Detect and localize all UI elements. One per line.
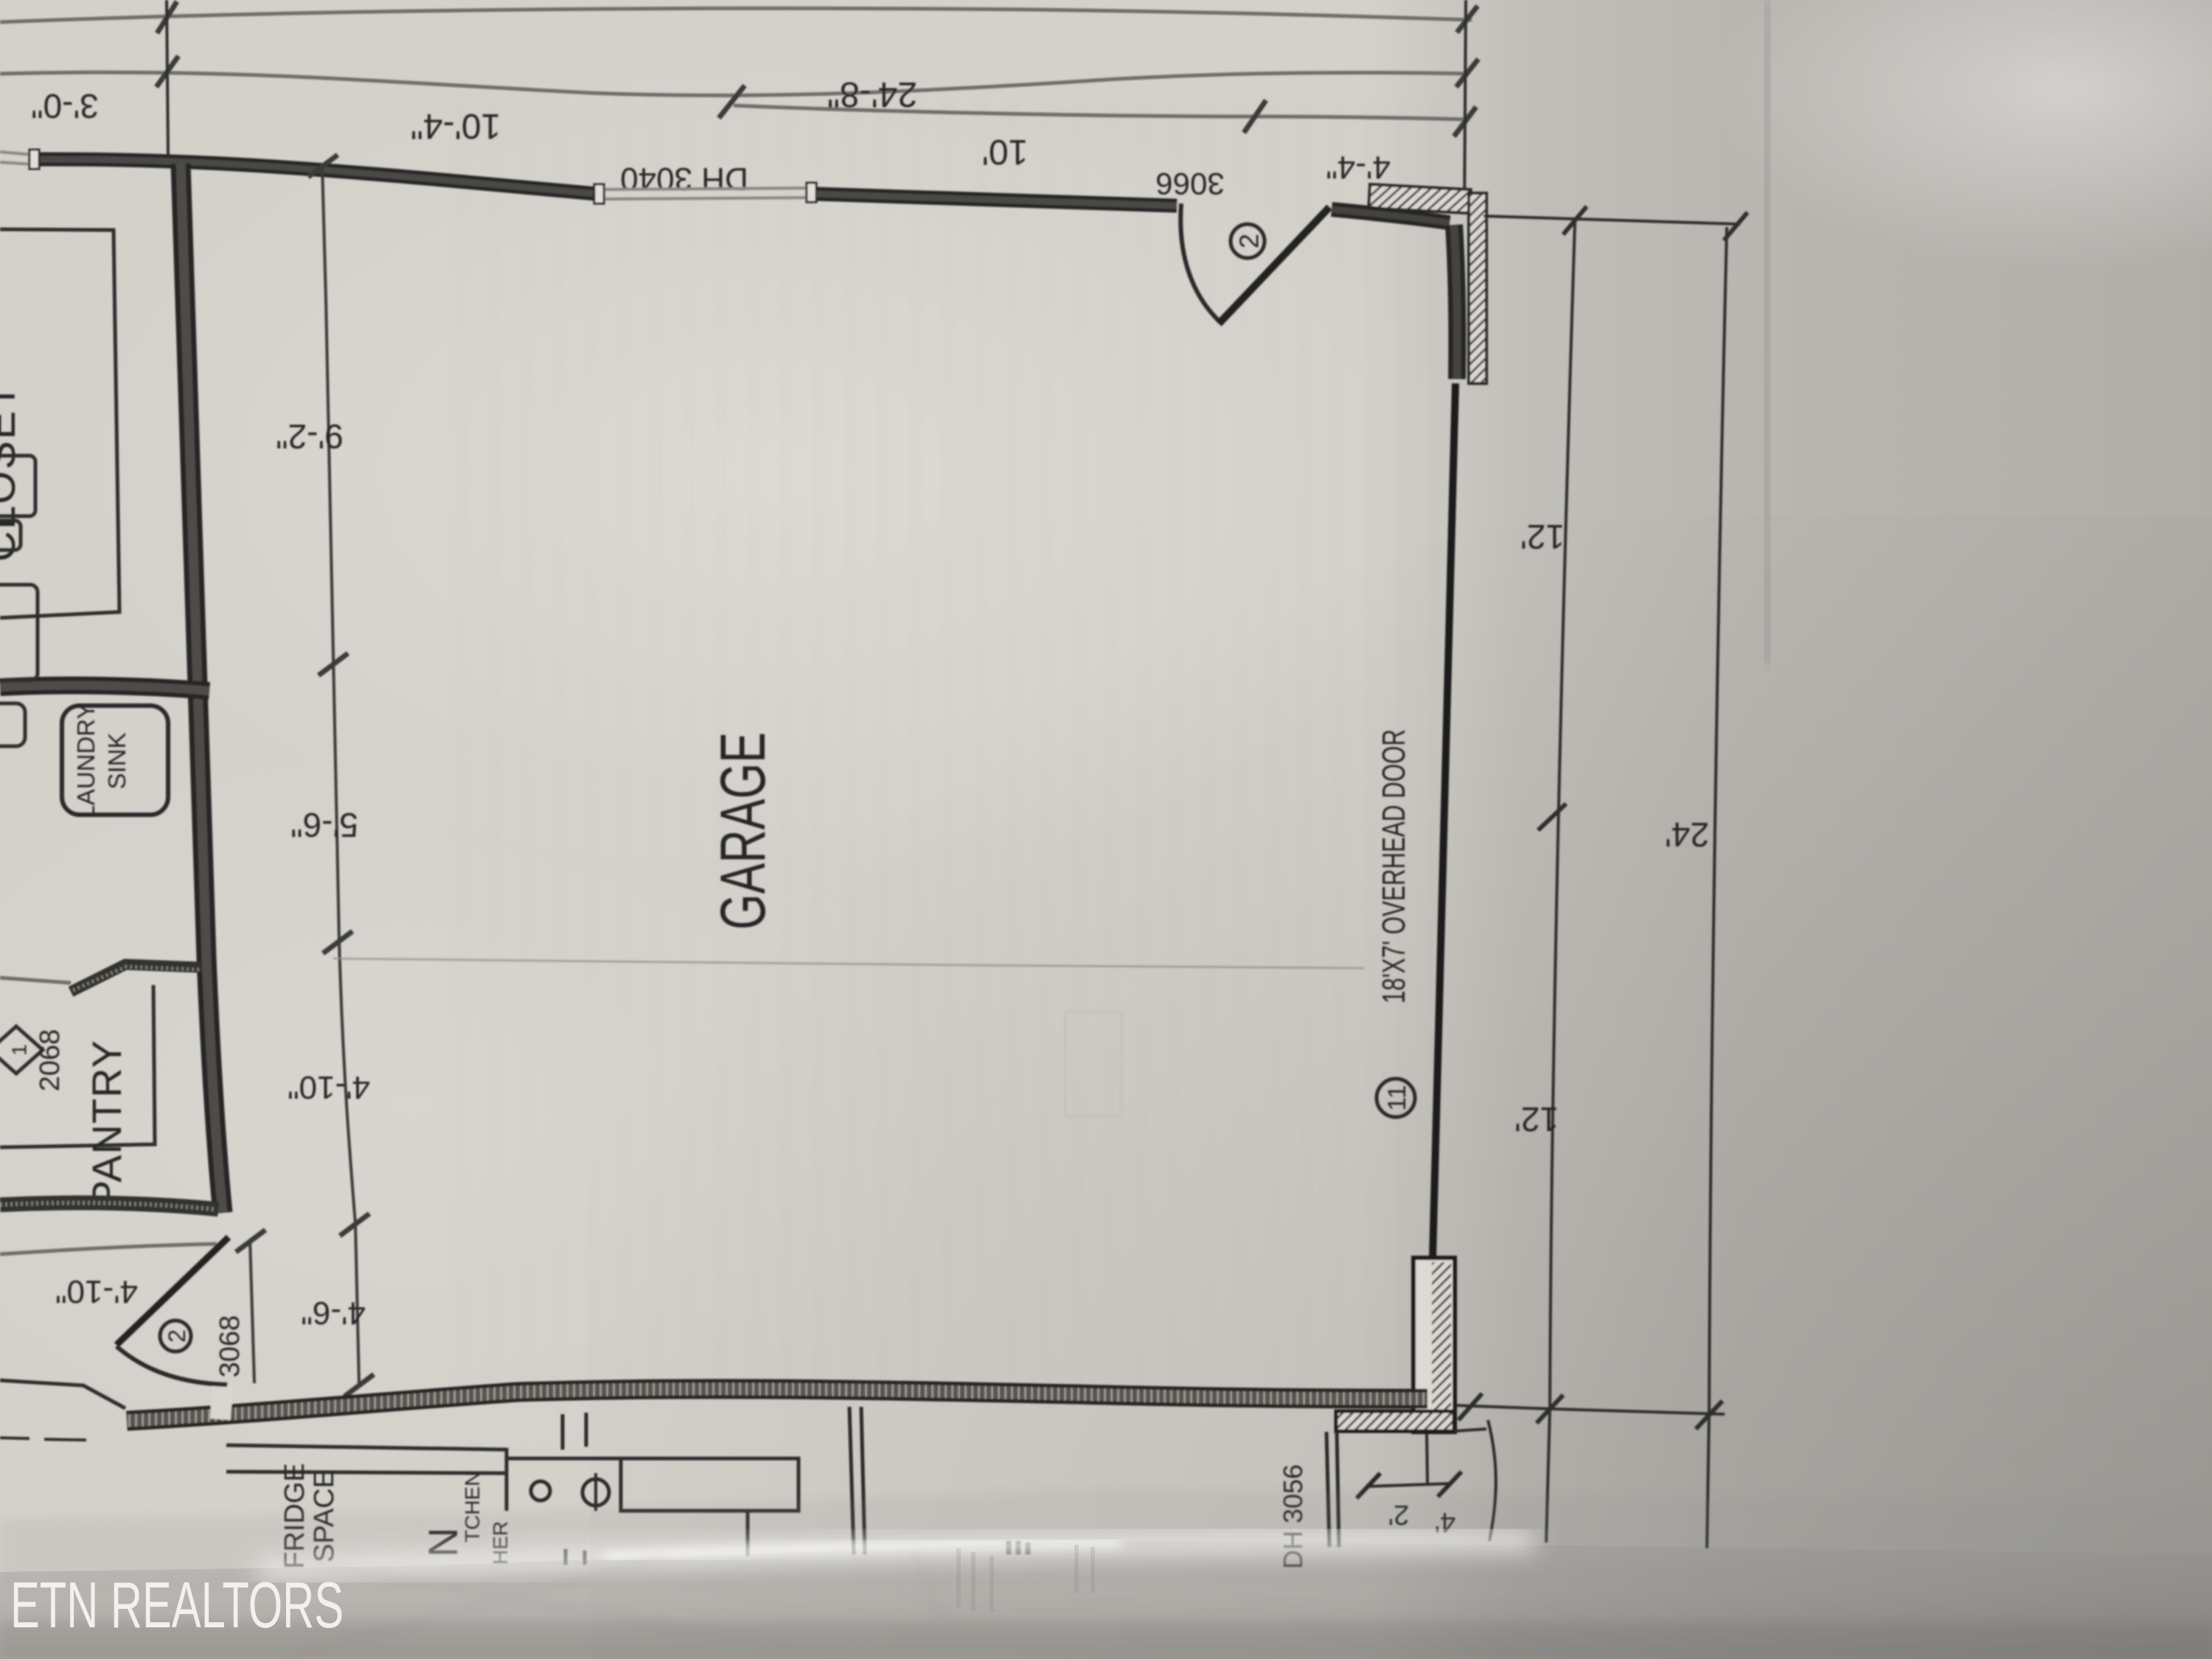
svg-text:2: 2 (164, 1329, 190, 1343)
svg-text:12': 12' (1514, 1100, 1559, 1138)
svg-text:4'-4": 4'-4" (1326, 149, 1391, 185)
svg-text:4'-10": 4'-10" (55, 1273, 138, 1310)
svg-text:11: 11 (1383, 1085, 1411, 1110)
svg-text:SINK: SINK (103, 732, 131, 789)
svg-text:10': 10' (982, 132, 1029, 171)
svg-text:24': 24' (1665, 815, 1709, 854)
svg-text:GARAGE: GARAGE (708, 732, 779, 930)
svg-text:10'-4": 10'-4" (411, 106, 501, 145)
svg-text:9'-2": 9'-2" (276, 417, 344, 456)
svg-text:3068: 3068 (215, 1315, 246, 1378)
svg-text:5'-6": 5'-6" (291, 806, 358, 844)
svg-text:1: 1 (8, 1044, 31, 1056)
svg-text:2068: 2068 (35, 1029, 66, 1092)
svg-text:ETN REALTORS: ETN REALTORS (10, 1568, 344, 1641)
svg-text:4'-10": 4'-10" (288, 1069, 370, 1105)
svg-text:12': 12' (1520, 518, 1565, 556)
svg-text:4'-6": 4'-6" (301, 1295, 366, 1331)
svg-text:3'-0": 3'-0" (31, 87, 99, 125)
svg-text:PANTRY: PANTRY (83, 1040, 130, 1208)
svg-text:DH 3040: DH 3040 (620, 161, 748, 197)
svg-text:18'X7' OVERHEAD DOOR: 18'X7' OVERHEAD DOOR (1376, 729, 1412, 1004)
svg-text:3066: 3066 (1155, 167, 1224, 201)
svg-text:2: 2 (1234, 234, 1265, 248)
svg-text:LAUNDRY: LAUNDRY (72, 703, 100, 818)
